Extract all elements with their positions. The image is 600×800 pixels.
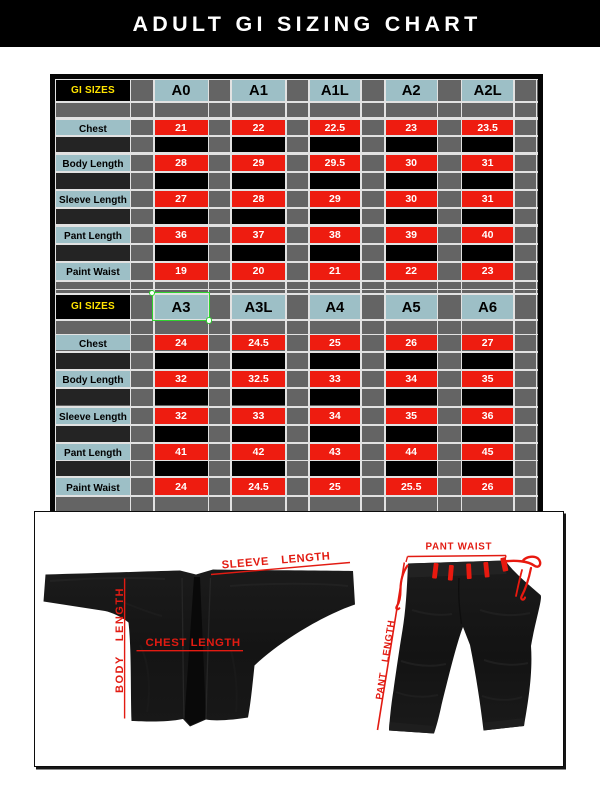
svg-text:PANT WAIST: PANT WAIST xyxy=(426,542,493,553)
svg-text:CHEST LENGTH: CHEST LENGTH xyxy=(146,637,241,649)
svg-text:BODY LENGTH: BODY LENGTH xyxy=(114,587,126,693)
